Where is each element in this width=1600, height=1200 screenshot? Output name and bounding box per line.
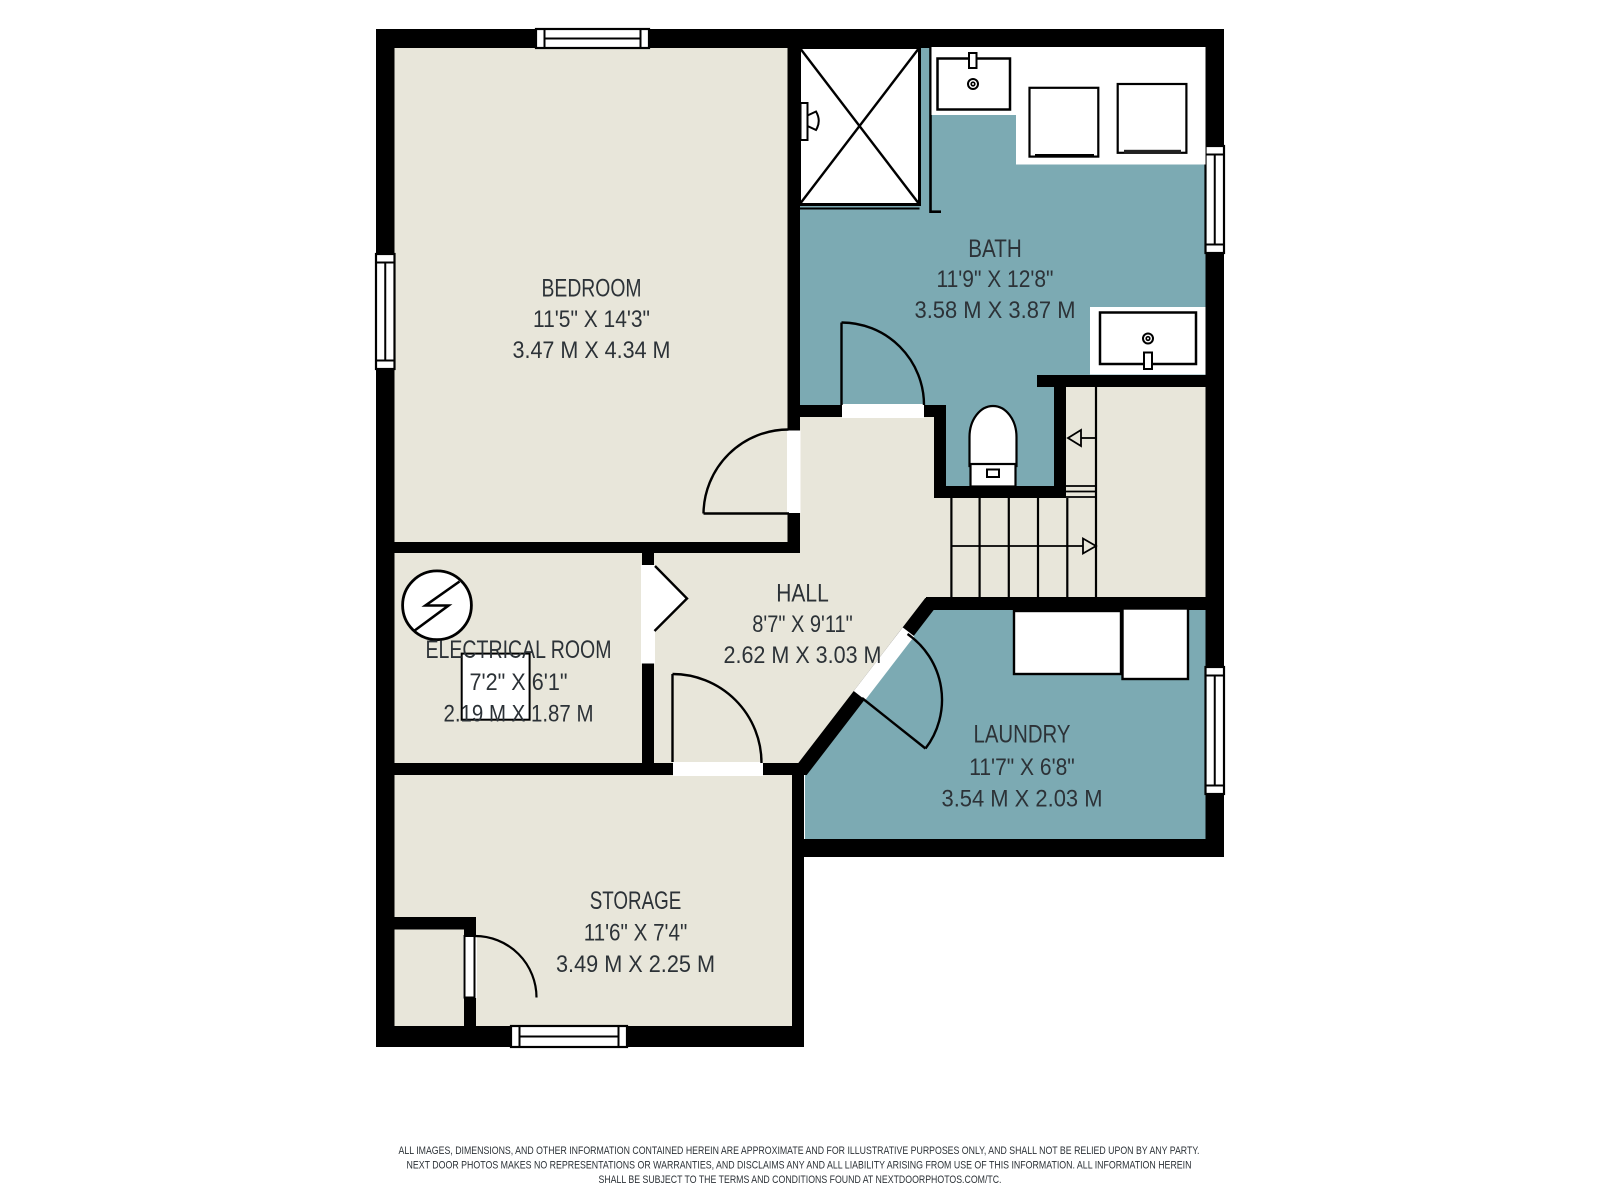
svg-text:3.54 M X 2.03 M: 3.54 M X 2.03 M <box>942 786 1103 813</box>
svg-text:11'5" X 14'3": 11'5" X 14'3" <box>533 306 650 333</box>
svg-text:NEXT DOOR PHOTOS MAKES NO REPR: NEXT DOOR PHOTOS MAKES NO REPRESENTATION… <box>407 1160 1192 1172</box>
svg-text:11'9" X 12'8": 11'9" X 12'8" <box>937 266 1054 293</box>
svg-text:ELECTRICAL ROOM: ELECTRICAL ROOM <box>426 636 612 664</box>
svg-text:8'7" X 9'11": 8'7" X 9'11" <box>752 611 853 638</box>
svg-text:STORAGE: STORAGE <box>590 887 682 915</box>
svg-text:3.49 M X 2.25 M: 3.49 M X 2.25 M <box>556 951 715 978</box>
svg-text:2.62 M X 3.03 M: 2.62 M X 3.03 M <box>724 642 882 669</box>
svg-text:SHALL BE SUBJECT TO THE TERMS: SHALL BE SUBJECT TO THE TERMS AND CONDIT… <box>599 1174 1002 1186</box>
svg-text:2.19 M X 1.87 M: 2.19 M X 1.87 M <box>444 701 594 728</box>
svg-text:ALL IMAGES, DIMENSIONS, AND OT: ALL IMAGES, DIMENSIONS, AND OTHER INFORM… <box>399 1145 1200 1157</box>
svg-text:11'7" X 6'8": 11'7" X 6'8" <box>969 754 1075 781</box>
svg-text:7'2" X 6'1": 7'2" X 6'1" <box>470 669 568 696</box>
svg-text:HALL: HALL <box>776 580 829 608</box>
svg-text:3.47 M X 4.34 M: 3.47 M X 4.34 M <box>513 337 671 364</box>
svg-text:3.58 M X 3.87 M: 3.58 M X 3.87 M <box>915 297 1076 324</box>
svg-text:11'6" X 7'4": 11'6" X 7'4" <box>584 920 688 947</box>
svg-text:BEDROOM: BEDROOM <box>542 275 642 303</box>
svg-text:BATH: BATH <box>968 235 1022 263</box>
svg-text:LAUNDRY: LAUNDRY <box>974 721 1071 749</box>
